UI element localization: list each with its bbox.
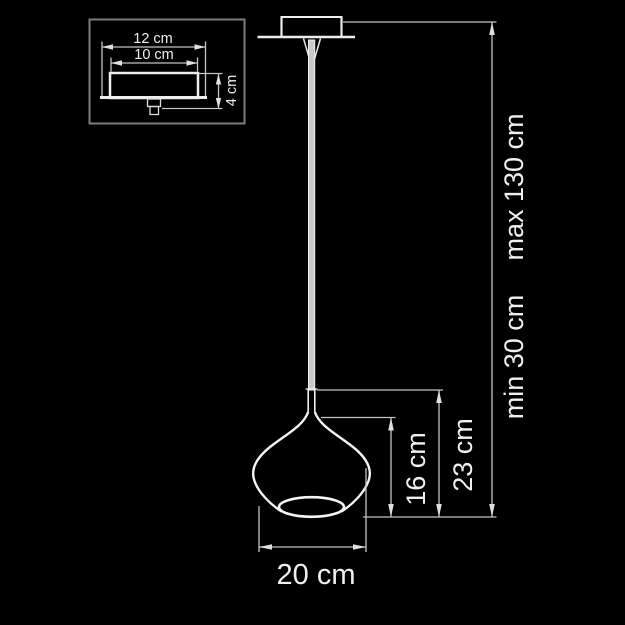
arrowhead-right	[187, 60, 198, 65]
inset-cord-grip-lower	[150, 107, 159, 115]
suspension-cord	[309, 40, 315, 390]
inset-cord-grip-upper	[148, 99, 161, 107]
label-shade-body-height: 16 cm	[401, 432, 431, 506]
drawing-canvas: 12 cm 10 cm 4 cm 16 cm 23 cm min 30 cm m…	[0, 0, 625, 625]
label-shade-diameter: 20 cm	[277, 559, 356, 591]
lamp-technical-drawing: 12 cm 10 cm 4 cm 16 cm 23 cm min 30 cm m…	[0, 0, 625, 625]
label-canopy-inner-width: 10 cm	[134, 47, 174, 63]
label-suspension-min: min 30 cm	[499, 295, 529, 420]
arrowhead-up	[216, 74, 221, 85]
arrowhead-right	[195, 44, 206, 49]
shade-bottom-opening	[279, 497, 344, 517]
arrowhead-down	[388, 504, 394, 517]
dimension-4cm	[162, 74, 223, 109]
arrowhead-down	[436, 504, 442, 517]
label-canopy-outer-width: 12 cm	[133, 31, 173, 47]
canopy	[258, 17, 356, 59]
arrowhead-up	[388, 418, 394, 431]
dimension-20cm	[259, 468, 366, 552]
label-shade-total-height: 23 cm	[448, 418, 478, 492]
shade-neck-tube	[308, 389, 315, 412]
arrowhead-right	[353, 544, 366, 550]
arrowhead-up	[489, 22, 495, 35]
inset-canopy-body	[110, 73, 198, 98]
arrowhead-left	[259, 544, 272, 550]
arrowhead-left	[111, 60, 122, 65]
glass-shade	[253, 389, 370, 517]
arrowhead-down	[216, 98, 221, 109]
arrowhead-up	[436, 390, 442, 403]
arrowhead-left	[102, 44, 113, 49]
label-canopy-height: 4 cm	[224, 75, 240, 106]
label-suspension-max: max 130 cm	[499, 113, 529, 260]
arrowhead-down	[489, 504, 495, 517]
